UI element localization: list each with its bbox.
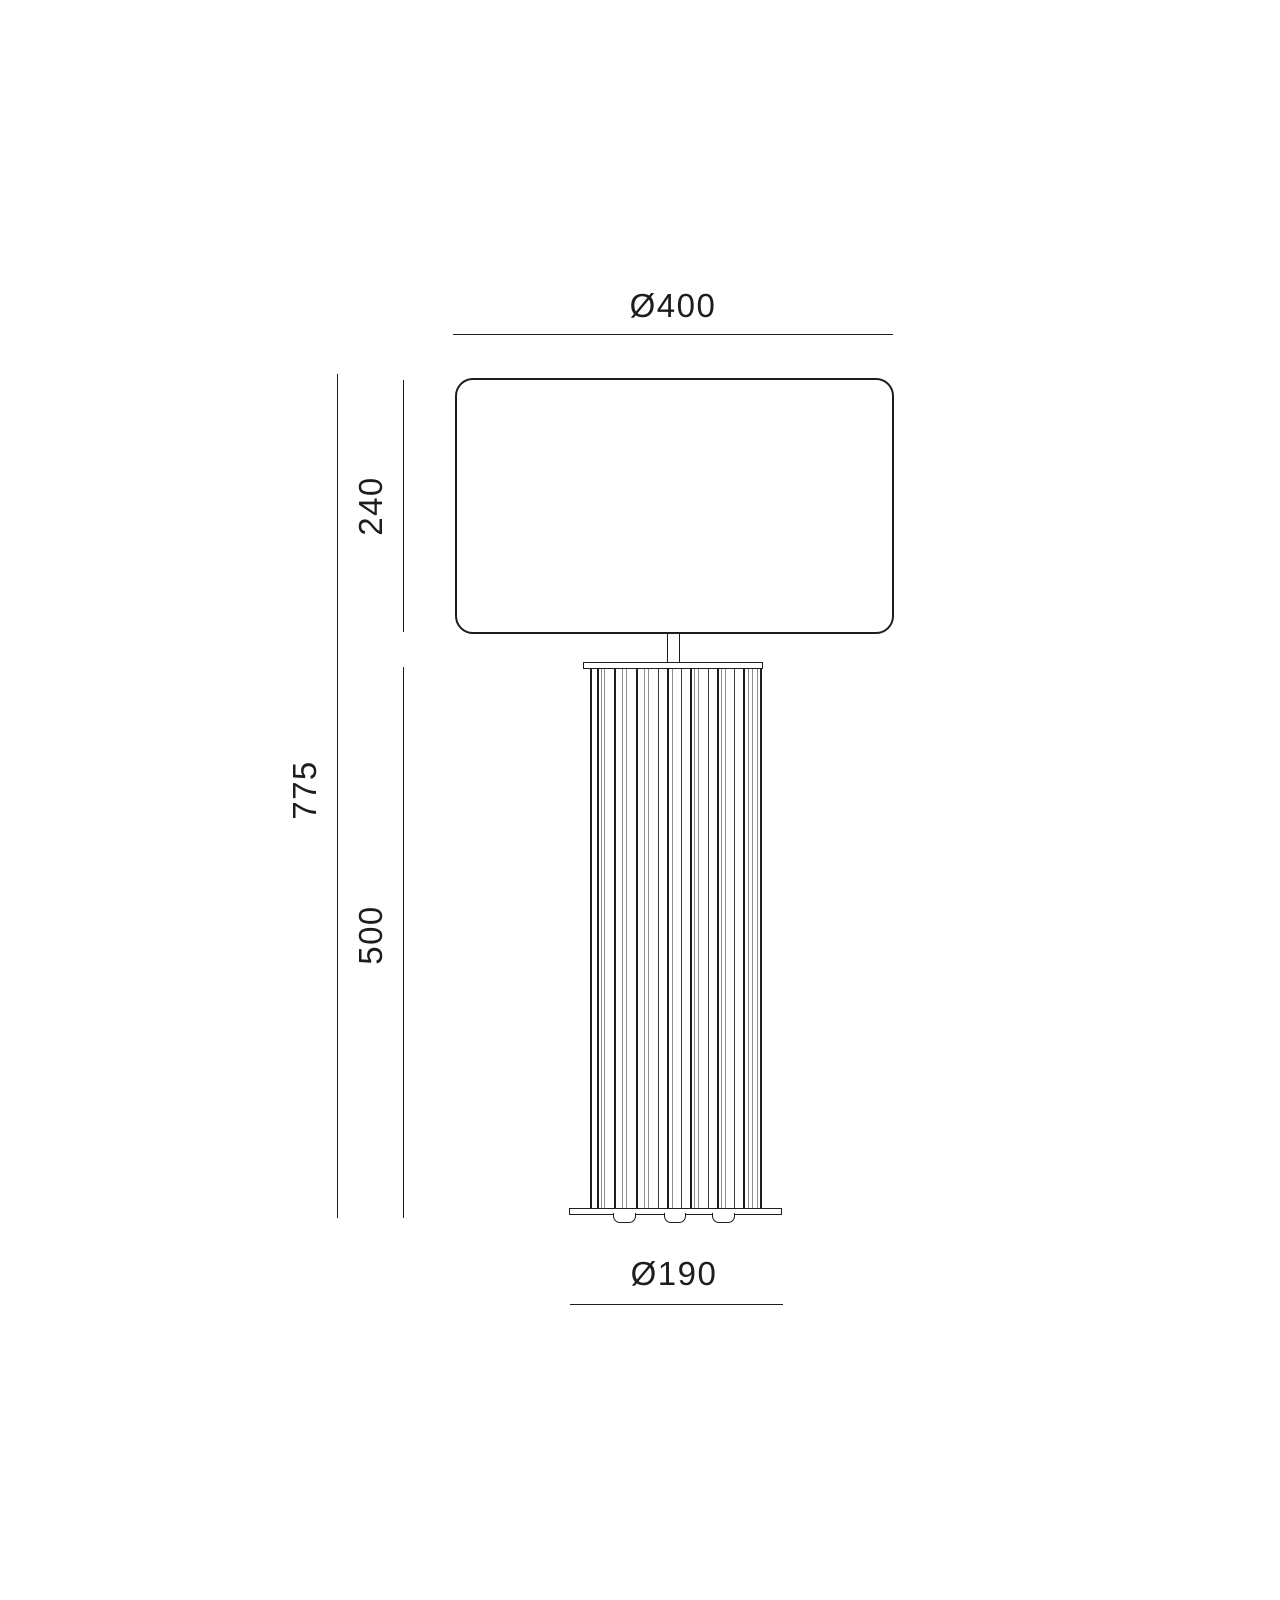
column-rod-line	[626, 669, 627, 1208]
column-height-label: 500	[352, 905, 390, 965]
column-rod-line	[734, 669, 735, 1208]
column-rod-line	[636, 669, 638, 1208]
total-height-label: 775	[286, 760, 324, 820]
column-rod-line	[667, 669, 669, 1208]
shade-height-label: 240	[352, 476, 390, 536]
base-foot-left	[613, 1213, 636, 1223]
column-rod-line	[690, 669, 692, 1208]
shade-height-dimension-line	[403, 380, 404, 632]
column-rod-line	[590, 669, 592, 1208]
column-height-dimension-line	[403, 667, 404, 1218]
column-rod-line	[725, 669, 726, 1208]
column-rod-line	[604, 669, 605, 1208]
column-rod-line	[757, 669, 758, 1208]
column-rod-line	[698, 669, 699, 1208]
lamp-stem	[667, 634, 680, 663]
base-diameter-label: Ø190	[631, 1255, 718, 1293]
column-rod-line	[644, 669, 645, 1208]
column-top-cap	[583, 662, 763, 669]
column-rod-line	[717, 669, 719, 1208]
column-rod-line	[708, 669, 709, 1208]
column-rod-line	[721, 669, 722, 1208]
column-rod-line	[648, 669, 649, 1208]
shade-diameter-dimension-line	[453, 334, 893, 335]
total-height-dimension-line	[337, 374, 338, 1218]
column-rod-line	[748, 669, 749, 1208]
column-rod-line	[614, 669, 616, 1208]
column-rod-line	[672, 669, 673, 1208]
column-rod-line	[681, 669, 682, 1208]
column-rod-line	[694, 669, 695, 1208]
base-diameter-dimension-line	[570, 1304, 783, 1305]
column-rod-line	[597, 669, 599, 1208]
column-rod-line	[752, 669, 753, 1208]
shade-diameter-label: Ø400	[630, 287, 717, 325]
column-rods	[590, 669, 760, 1208]
lamp-shade-outline	[455, 378, 894, 634]
column-rod-line	[658, 669, 659, 1208]
base-foot-center	[664, 1213, 686, 1223]
technical-drawing-canvas: Ø400 775 240 500 Ø190	[0, 0, 1280, 1600]
column-rod-line	[622, 669, 623, 1208]
column-rod-line	[601, 669, 602, 1208]
base-foot-right	[712, 1213, 735, 1223]
column-rod-line	[743, 669, 745, 1208]
column-rod-line	[760, 669, 762, 1208]
